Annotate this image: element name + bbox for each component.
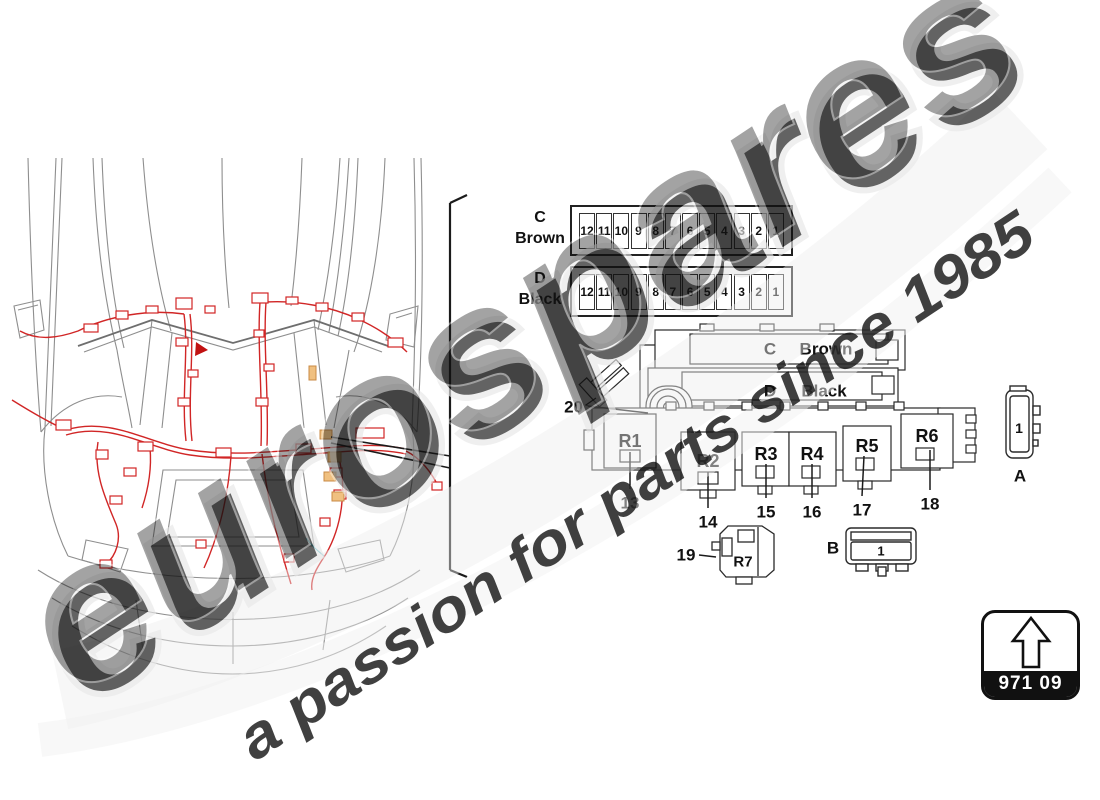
row-d-letter: D xyxy=(507,268,573,289)
fuse-cell: 2 xyxy=(751,274,767,310)
relay-label-r4: R4 xyxy=(800,444,823,464)
strip-c-letter: C xyxy=(764,340,776,359)
fusebox-assembly-drawing: C Brown D Black R1 R2 R3 R4 R5 R6 20 13 … xyxy=(552,318,988,533)
detail-bracket xyxy=(450,195,467,577)
fuse-cell: 3 xyxy=(734,213,750,249)
relay-label-r7: R7 xyxy=(733,554,752,571)
fuse-cell: 2 xyxy=(751,213,767,249)
fuse-cell: 5 xyxy=(699,213,715,249)
callout-19[interactable]: 19 xyxy=(677,546,696,565)
fuse-cell: 1 xyxy=(768,274,784,310)
connector-a-pin: 1 xyxy=(1015,420,1023,436)
fuse-cell: 4 xyxy=(716,213,732,249)
fuse-cell: 1 xyxy=(768,213,784,249)
relay-label-r5: R5 xyxy=(855,436,878,456)
car-wireframe xyxy=(0,138,480,800)
callout-17[interactable]: 17 xyxy=(853,501,872,520)
strip-c-color: Brown xyxy=(800,340,853,359)
part-code-badge[interactable]: 971 09 xyxy=(981,610,1080,700)
leader-19 xyxy=(699,555,716,557)
fuse-cell: 12 xyxy=(579,274,595,310)
callout-16[interactable]: 16 xyxy=(803,503,822,522)
fuse-cell: 10 xyxy=(613,274,629,310)
connector-b-label: B xyxy=(827,539,839,558)
fuse-cell: 7 xyxy=(665,213,681,249)
relay-label-r6: R6 xyxy=(915,426,938,446)
fuse-row-c-label: C Brown xyxy=(507,207,573,249)
row-c-letter: C xyxy=(507,207,573,228)
callout-20[interactable]: 20 xyxy=(564,398,583,417)
fuse-cell: 4 xyxy=(716,274,732,310)
fuse-cell: 6 xyxy=(682,274,698,310)
fuse-cell: 11 xyxy=(596,213,612,249)
relay-r7-drawing: 19 R7 xyxy=(660,515,785,593)
wiring-harness xyxy=(12,302,440,590)
relay-label-r3: R3 xyxy=(754,444,777,464)
row-c-color: Brown xyxy=(507,228,573,249)
part-code-number: 971 09 xyxy=(984,671,1077,697)
fuse-cell: 8 xyxy=(648,274,664,310)
fuse-cell: 10 xyxy=(613,213,629,249)
car-body-lines xyxy=(14,158,422,674)
harness-arrow xyxy=(195,342,208,356)
connector-a-drawing: 1 A xyxy=(975,383,1045,485)
fuse-row-d-label: D Black xyxy=(507,268,573,310)
fuse-cell: 5 xyxy=(699,274,715,310)
callout-13[interactable]: 13 xyxy=(621,494,640,513)
fuse-cell: 9 xyxy=(631,213,647,249)
highlighted-connectors xyxy=(309,366,344,501)
fusebox-strip-c xyxy=(655,324,905,370)
fuse-cell: 7 xyxy=(665,274,681,310)
row-d-color: Black xyxy=(507,289,573,310)
connector-a-label: A xyxy=(1014,467,1026,486)
fuse-cell: 11 xyxy=(596,274,612,310)
fuse-cell: 9 xyxy=(631,274,647,310)
relay-label-r2: R2 xyxy=(696,451,719,471)
fuse-row-c: 12 11 10 9 8 7 6 5 4 3 2 1 xyxy=(570,205,793,256)
callout-18[interactable]: 18 xyxy=(921,495,940,514)
fuse-cell: 6 xyxy=(682,213,698,249)
relay-label-r1: R1 xyxy=(618,431,641,451)
fuse-cell: 12 xyxy=(579,213,595,249)
fuse-cell: 8 xyxy=(648,213,664,249)
up-arrow-icon xyxy=(984,613,1077,671)
connector-b-pin: 1 xyxy=(877,544,884,559)
fuse-row-d: 12 11 10 9 8 7 6 5 4 3 2 1 xyxy=(570,266,793,317)
strip-d-letter: D xyxy=(764,382,776,401)
fuse-cell: 3 xyxy=(734,274,750,310)
strip-d-color: Black xyxy=(801,382,847,401)
diagonal-connector xyxy=(579,355,632,407)
cyan-wire xyxy=(306,538,324,556)
cowl-line xyxy=(78,320,388,346)
connector-b-drawing: B 1 xyxy=(800,522,925,580)
leader-lines xyxy=(331,437,450,468)
